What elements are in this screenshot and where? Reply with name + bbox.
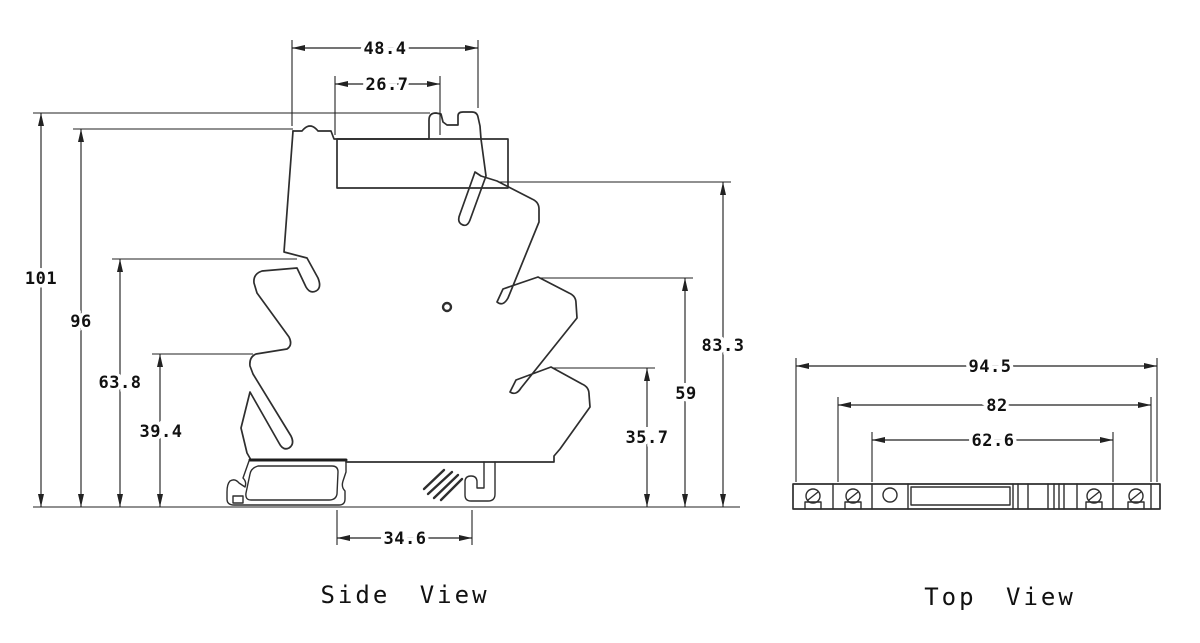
dim-label-left-lower-height: 39.4 bbox=[140, 422, 183, 442]
top-view-label: Top View bbox=[924, 583, 1076, 611]
dim-total-height: 101 bbox=[25, 113, 430, 507]
dim-label-right-lower-height: 35.7 bbox=[626, 428, 669, 448]
rail-latch-hook bbox=[465, 462, 495, 501]
dim-label-body-width: 82 bbox=[986, 396, 1007, 416]
side-body-left-profile bbox=[241, 131, 320, 460]
dim-label-right-upper-height: 83.3 bbox=[702, 336, 745, 356]
dim-right-mid-height: 59 bbox=[541, 278, 697, 507]
dim-overall-width: 94.5 bbox=[796, 357, 1157, 482]
dim-socket-width: 26.7 bbox=[335, 75, 440, 135]
side-body-top-edge bbox=[293, 112, 481, 139]
screw-terminals bbox=[805, 488, 1144, 509]
dim-label-top-width: 48.4 bbox=[364, 39, 407, 59]
dim-label-foot-width: 34.6 bbox=[384, 529, 427, 549]
dim-label-total-height: 101 bbox=[25, 269, 57, 289]
label-window bbox=[911, 487, 1010, 505]
dim-label-socket-width: 26.7 bbox=[366, 75, 409, 95]
dim-label-overall-width: 94.5 bbox=[969, 357, 1012, 377]
technical-drawing-canvas: 48.4 26.7 101 96 63.8 39.4 bbox=[0, 0, 1200, 643]
dim-label-left-upper-height: 63.8 bbox=[99, 373, 142, 393]
side-view: 48.4 26.7 101 96 63.8 39.4 bbox=[25, 39, 745, 609]
foot-outline bbox=[227, 461, 346, 505]
top-view: 94.5 82 62.6 Top View bbox=[793, 357, 1160, 611]
dim-left-lower-height: 39.4 bbox=[140, 354, 253, 507]
technical-drawing-page: 48.4 26.7 101 96 63.8 39.4 bbox=[0, 0, 1200, 643]
dim-inner-width: 62.6 bbox=[872, 431, 1113, 482]
dim-body-height: 96 bbox=[70, 129, 293, 507]
body-hole bbox=[443, 303, 451, 311]
dim-foot-width: 34.6 bbox=[337, 510, 472, 549]
dim-label-inner-width: 62.6 bbox=[972, 431, 1015, 451]
latch-spring-hatch bbox=[424, 470, 462, 500]
dim-right-lower-height: 35.7 bbox=[553, 368, 668, 507]
dim-right-upper-height: 83.3 bbox=[500, 182, 744, 507]
dim-label-right-mid-height: 59 bbox=[675, 384, 696, 404]
dim-label-body-height: 96 bbox=[70, 312, 91, 332]
foot-notch bbox=[233, 496, 243, 503]
dim-left-upper-height: 63.8 bbox=[99, 259, 297, 507]
foot-inner-cavity bbox=[246, 466, 338, 500]
side-view-label: Side View bbox=[320, 581, 489, 609]
